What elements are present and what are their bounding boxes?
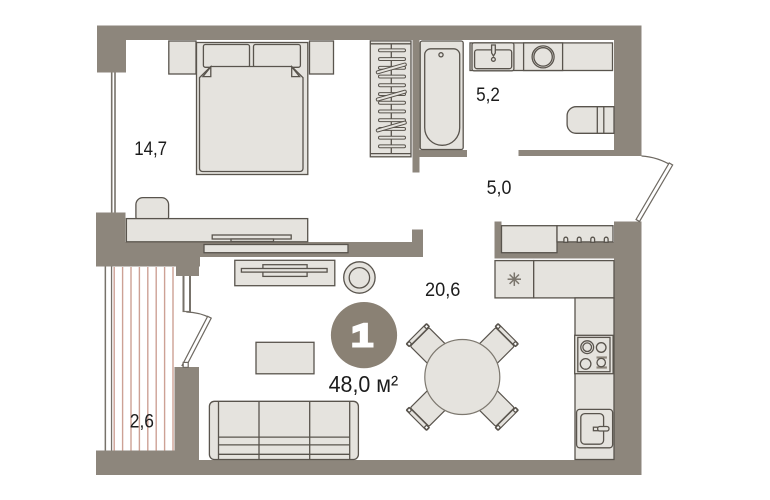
svg-text:2,6: 2,6 xyxy=(130,412,154,433)
svg-text:5,0: 5,0 xyxy=(487,178,512,199)
svg-text:5,2: 5,2 xyxy=(476,85,500,106)
svg-text:20,6: 20,6 xyxy=(425,280,460,301)
svg-text:14,7: 14,7 xyxy=(134,139,167,160)
svg-text:48,0 м²: 48,0 м² xyxy=(329,371,399,397)
